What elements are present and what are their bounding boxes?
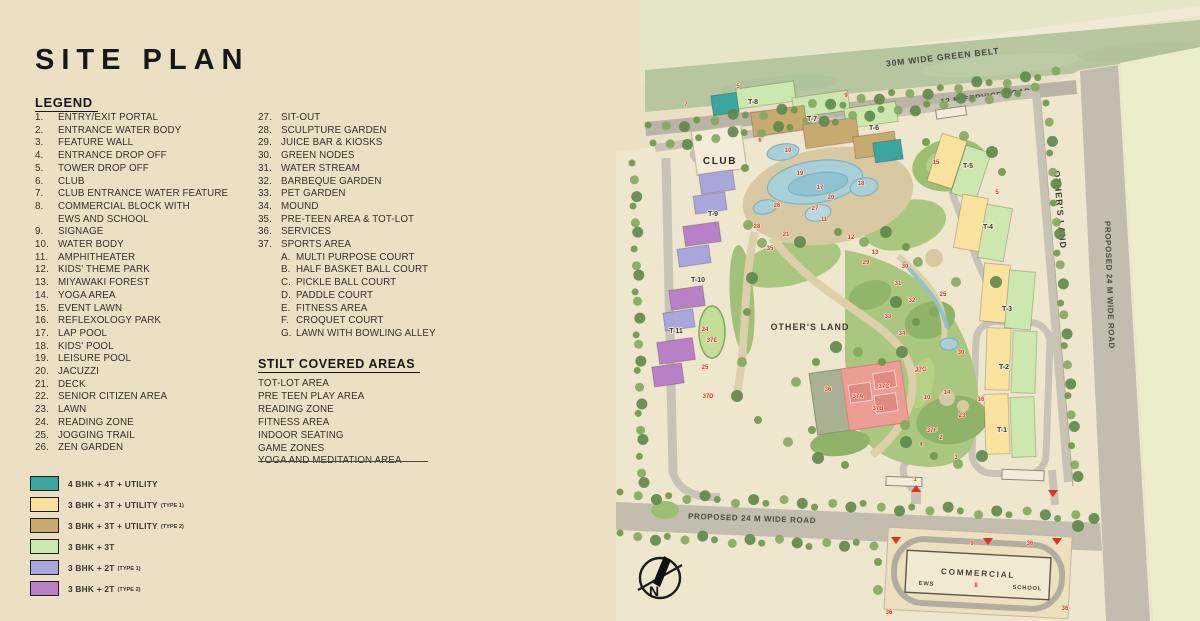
tree-icon — [925, 506, 934, 515]
tree-icon — [792, 537, 803, 548]
tree-icon — [848, 111, 857, 120]
tree-icon — [758, 540, 765, 547]
map-marker: 15 — [933, 160, 940, 166]
tree-icon — [1047, 136, 1058, 147]
tree-icon — [757, 129, 766, 138]
tree-icon — [974, 510, 983, 519]
tree-icon — [1054, 228, 1065, 239]
tree-icon — [1057, 300, 1064, 307]
tree-icon — [1069, 421, 1080, 432]
tree-icon — [894, 505, 905, 516]
tree-icon — [629, 160, 636, 167]
tree-icon — [1067, 410, 1076, 419]
tree-icon — [811, 504, 818, 511]
tree-icon — [971, 76, 982, 87]
tree-icon — [632, 288, 639, 295]
tree-icon — [731, 499, 740, 508]
tree-icon — [1005, 511, 1012, 518]
tree-icon — [742, 112, 749, 119]
tree-icon — [634, 313, 645, 324]
tree-icon — [737, 357, 747, 367]
map-marker: 21 — [783, 232, 790, 238]
tree-icon — [1031, 83, 1040, 92]
map-marker: 37F — [927, 428, 938, 434]
map-marker: 34 — [899, 331, 906, 337]
map-marker: 31 — [895, 281, 902, 287]
tree-icon — [929, 307, 939, 317]
tree-icon — [880, 226, 892, 238]
tower-label: T-4 — [983, 224, 993, 231]
tower-label: T-5 — [963, 163, 973, 170]
map-marker: 19 — [797, 171, 804, 177]
map-marker: 14 — [944, 390, 951, 396]
tree-icon — [951, 277, 961, 287]
tree-icon — [864, 111, 875, 122]
map-marker: 25 — [702, 365, 709, 371]
map-marker: 10 — [785, 148, 792, 154]
tree-icon — [634, 340, 643, 349]
map-marker: 13 — [872, 250, 879, 256]
map-marker: 33 — [885, 314, 892, 320]
tree-icon — [637, 434, 648, 445]
tree-icon — [666, 139, 675, 148]
map-marker: 25 — [940, 292, 947, 298]
tree-icon — [1048, 168, 1057, 177]
tree-icon — [632, 227, 643, 238]
tree-icon — [783, 437, 793, 447]
tree-icon — [635, 383, 644, 392]
tree-icon — [822, 538, 831, 547]
tree-icon — [1040, 509, 1051, 520]
tree-icon — [998, 168, 1006, 176]
tree-icon — [1050, 200, 1057, 207]
tree-icon — [791, 377, 801, 387]
map-marker: 24 — [702, 327, 709, 333]
tree-icon — [728, 109, 739, 120]
tree-icon — [636, 426, 645, 435]
tree-icon — [633, 297, 642, 306]
tree-icon — [1023, 506, 1032, 515]
tree-icon — [1073, 471, 1084, 482]
tower-label: T-10 — [691, 277, 705, 284]
tree-icon — [1072, 520, 1084, 532]
map-marker: 20 — [828, 195, 835, 201]
tree-icon — [956, 93, 967, 104]
tree-icon — [845, 502, 856, 513]
tree-icon — [943, 502, 954, 513]
tree-icon — [908, 504, 915, 511]
tree-icon — [693, 117, 700, 124]
tree-icon — [1062, 328, 1073, 339]
tree-icon — [841, 461, 849, 469]
map-marker: 37D — [702, 394, 714, 400]
tree-icon — [1045, 118, 1054, 127]
tree-icon — [757, 238, 767, 248]
tree-icon — [878, 106, 885, 113]
tree-icon — [1054, 515, 1061, 522]
tree-icon — [636, 453, 643, 460]
tree-icon — [759, 111, 768, 120]
tree-icon — [832, 119, 839, 126]
map-marker: 27 — [812, 206, 819, 212]
tree-icon — [1020, 71, 1031, 82]
tree-icon — [1053, 250, 1060, 257]
tree-icon — [695, 134, 702, 141]
tree-icon — [762, 500, 769, 507]
club-label: CLUB — [703, 156, 737, 167]
tree-icon — [860, 500, 867, 507]
map-marker: 29 — [863, 260, 870, 266]
commercial-block: COMMERCIAL EWS SCHOOL — [884, 527, 1072, 619]
tree-icon — [662, 121, 671, 130]
tree-icon — [1064, 392, 1071, 399]
tree-icon — [976, 450, 988, 462]
tree-icon — [633, 331, 640, 338]
tree-icon — [1052, 67, 1061, 76]
tree-icon — [650, 535, 661, 546]
tower-label: T-11 — [669, 328, 683, 335]
tree-icon — [937, 84, 944, 91]
tree-icon — [1046, 150, 1053, 157]
tree-icon — [780, 495, 789, 504]
tree-icon — [745, 534, 756, 545]
tree-icon — [825, 99, 836, 110]
tree-icon — [1068, 442, 1075, 449]
tree-icon — [1034, 74, 1041, 81]
tree-icon — [741, 164, 749, 172]
tree-icon — [794, 236, 806, 248]
tree-icon — [1001, 87, 1012, 98]
tree-icon — [682, 495, 691, 504]
map-marker: 12 — [848, 235, 855, 241]
map-marker: 30 — [902, 264, 909, 270]
tree-icon — [776, 104, 787, 115]
ews-label: EWS — [918, 581, 934, 588]
tree-icon — [874, 558, 882, 566]
tree-icon — [631, 245, 638, 252]
tree-icon — [617, 530, 624, 537]
tree-icon — [888, 89, 895, 96]
tree-icon — [878, 358, 886, 366]
tree-icon — [828, 499, 837, 508]
tree-icon — [791, 107, 798, 114]
tree-icon — [714, 496, 721, 503]
map-marker: 37C — [878, 384, 890, 390]
tree-icon — [773, 121, 784, 132]
tree-icon — [700, 490, 711, 501]
tree-icon — [679, 121, 690, 132]
tree-icon — [1070, 460, 1079, 469]
tree-icon — [1061, 342, 1068, 349]
tree-icon — [939, 100, 948, 109]
tree-icon — [890, 296, 902, 308]
tree-icon — [834, 228, 842, 236]
tree-icon — [1056, 260, 1065, 269]
tree-icon — [639, 477, 650, 488]
map-marker: 10 — [924, 395, 931, 401]
tree-icon — [786, 124, 793, 131]
tree-icon — [1058, 278, 1069, 289]
tree-icon — [634, 491, 643, 500]
tree-icon — [741, 129, 748, 136]
tower-label: T-7 — [807, 116, 817, 123]
tree-icon — [728, 126, 739, 137]
tree-icon — [1089, 513, 1100, 524]
tree-icon — [912, 318, 920, 326]
tree-icon — [631, 191, 642, 202]
map-marker: 11 — [821, 217, 828, 223]
tree-icon — [922, 138, 930, 146]
map-marker: 35 — [767, 246, 774, 252]
map-marker: 30 — [958, 350, 965, 356]
tree-icon — [631, 218, 640, 227]
tree-icon — [874, 94, 885, 105]
map-marker: 23 — [959, 413, 966, 419]
tree-icon — [819, 116, 830, 127]
map-marker: 18 — [858, 181, 865, 187]
compass-north-label: N — [649, 583, 659, 599]
tower-label: T-1 — [997, 427, 1007, 434]
tree-icon — [857, 94, 866, 103]
tree-icon — [728, 539, 737, 548]
tree-icon — [710, 116, 719, 125]
tree-icon — [905, 89, 914, 98]
tree-icon — [859, 237, 869, 247]
tree-icon — [870, 542, 879, 551]
tree-icon — [711, 536, 718, 543]
tree-icon — [651, 494, 662, 505]
tree-icon — [681, 536, 690, 545]
tree-icon — [812, 358, 820, 366]
tree-icon — [957, 507, 964, 514]
tree-icon — [930, 452, 938, 460]
tree-icon — [877, 503, 886, 512]
map-marker: 26 — [774, 203, 781, 209]
tower-label: T-6 — [869, 125, 879, 132]
tree-icon — [797, 498, 808, 509]
tree-icon — [896, 346, 908, 358]
tree-icon — [839, 102, 846, 109]
tree-icon — [923, 89, 934, 100]
tree-icon — [632, 261, 641, 270]
tree-icon — [910, 105, 921, 116]
tree-icon — [665, 492, 672, 499]
map-marker: 16 — [978, 397, 985, 403]
tree-icon — [775, 535, 784, 544]
map-marker: 36 — [825, 387, 832, 393]
tree-icon — [913, 257, 923, 267]
tree-icon — [806, 543, 813, 550]
tree-icon — [900, 420, 910, 430]
site-plan-map: 30M WIDE GREEN BELT 12 M SERVICE ROAD PR… — [0, 0, 1200, 621]
tree-icon — [711, 134, 720, 143]
tree-icon — [1051, 178, 1062, 189]
tree-icon — [630, 202, 637, 209]
tree-icon — [873, 585, 883, 595]
tower-label: T-9 — [708, 211, 718, 218]
tree-icon — [754, 416, 762, 424]
map-marker: 37E — [707, 338, 718, 344]
tree-icon — [923, 101, 930, 108]
tree-icon — [954, 84, 963, 93]
map-marker: 36 — [1027, 541, 1034, 547]
map-marker: 37A — [852, 394, 864, 400]
tree-icon — [635, 356, 646, 367]
tree-icon — [986, 79, 993, 86]
tree-icon — [959, 131, 969, 141]
tree-icon — [808, 426, 816, 434]
tree-icon — [633, 270, 644, 281]
tree-icon — [637, 469, 646, 478]
tree-icon — [697, 531, 708, 542]
tree-icon — [1003, 79, 1012, 88]
map-marker: 36 — [1062, 606, 1069, 612]
tree-icon — [853, 539, 860, 546]
tower-label: T-2 — [999, 364, 1009, 371]
tree-icon — [664, 533, 671, 540]
tree-icon — [839, 541, 850, 552]
tree-icon — [969, 95, 976, 102]
tree-icon — [630, 175, 639, 184]
others-land-center-label: OTHER'S LAND — [771, 322, 850, 332]
tree-icon — [1043, 100, 1050, 107]
map-marker: 32 — [909, 298, 916, 304]
tower-label: T-3 — [1002, 306, 1012, 313]
tree-icon — [731, 390, 743, 402]
tree-icon — [812, 452, 824, 464]
tree-icon — [986, 146, 998, 158]
tree-icon — [808, 99, 817, 108]
tree-icon — [748, 494, 759, 505]
tree-icon — [1059, 310, 1068, 319]
map-marker: 17 — [817, 185, 824, 191]
tree-icon — [746, 272, 758, 284]
tree-icon — [900, 436, 912, 448]
tree-icon — [617, 489, 624, 496]
tree-icon — [991, 505, 1002, 516]
tree-icon — [633, 532, 642, 541]
tree-icon — [682, 139, 693, 150]
tree-icon — [830, 341, 842, 353]
tree-icon — [635, 410, 642, 417]
map-marker: 37G — [915, 367, 927, 373]
tree-icon — [743, 308, 751, 316]
tree-icon — [636, 399, 647, 410]
tree-icon — [985, 95, 994, 104]
tree-icon — [634, 367, 641, 374]
map-marker: 37B — [872, 406, 884, 412]
tree-icon — [1065, 378, 1076, 389]
tree-icon — [645, 122, 652, 129]
tower-label: T-8 — [748, 99, 758, 106]
tree-icon — [1063, 360, 1072, 369]
map-marker: 36 — [886, 610, 893, 616]
tree-icon — [743, 220, 753, 230]
site-plan-page: SITE PLAN LEGEND 1.ENTRY/EXIT PORTAL2.EN… — [0, 0, 1200, 621]
tree-icon — [1071, 510, 1080, 519]
tree-icon — [1052, 218, 1061, 227]
tree-icon — [853, 347, 863, 357]
tree-icon — [902, 243, 910, 251]
map-marker: 28 — [754, 224, 761, 230]
tree-icon — [650, 140, 657, 147]
tree-icon — [894, 106, 903, 115]
tree-icon — [990, 276, 1002, 288]
tree-icon — [1014, 90, 1021, 97]
